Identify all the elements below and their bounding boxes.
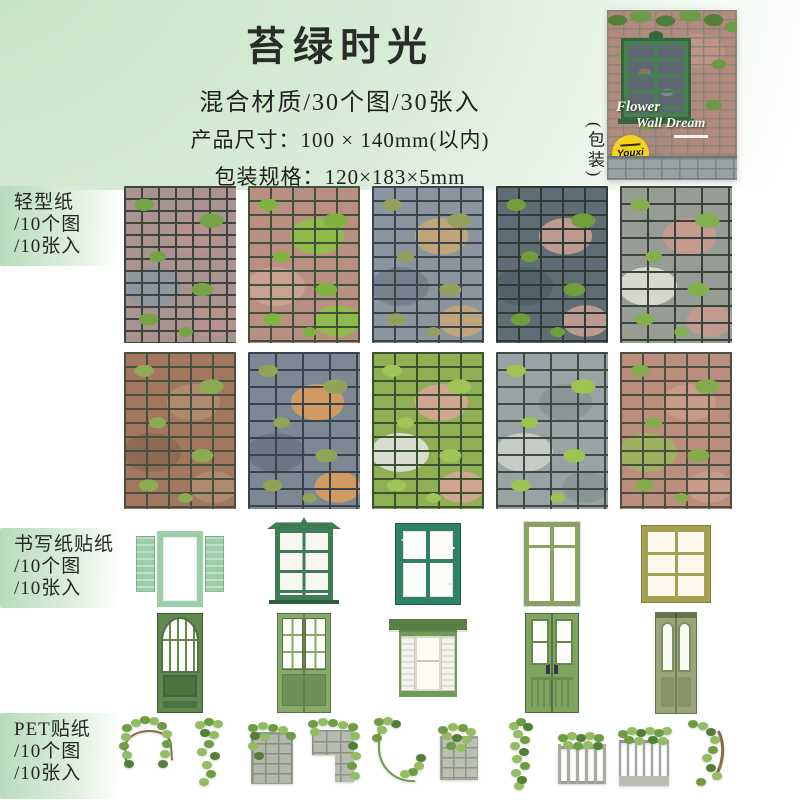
art-part	[248, 724, 258, 732]
window-shuttered-cornice	[372, 610, 484, 716]
brick-tile-2	[248, 186, 360, 343]
pavement-art	[607, 156, 737, 180]
package-side-label: (包装)	[585, 122, 607, 180]
section-label-line: /10个图	[14, 556, 120, 578]
window-art	[275, 528, 333, 600]
section-label-line: 轻型纸	[14, 192, 120, 214]
door-panel-double	[496, 610, 608, 716]
art-part	[554, 716, 564, 724]
pet-sticker-arch-vine	[118, 714, 176, 794]
art-part	[675, 532, 678, 596]
art-part	[689, 721, 728, 788]
doors-row	[124, 610, 732, 716]
door-art	[655, 612, 697, 714]
door-glass-double	[248, 610, 360, 716]
art-part	[616, 716, 626, 724]
art-part	[678, 716, 688, 724]
section-label-writing-sticker: 书写纸贴纸 /10个图 /10张入	[0, 528, 120, 608]
pet-sticker-stone-ivy	[428, 714, 486, 794]
window-art	[524, 522, 580, 606]
art-part	[123, 728, 173, 763]
section-label-light-paper: 轻型纸 /10个图 /10张入	[0, 186, 120, 266]
window-art	[642, 526, 710, 602]
art-part	[531, 677, 573, 707]
art-part	[558, 744, 606, 784]
art-part	[678, 622, 691, 672]
pet-sticker-art	[430, 716, 484, 792]
section-label-line: /10张入	[14, 578, 120, 600]
door-arch-fanlight	[124, 610, 236, 716]
brick-tile-6	[124, 352, 236, 509]
art-part	[440, 736, 478, 780]
pet-sticker-art	[306, 716, 360, 792]
art-part	[312, 730, 354, 782]
art-part	[558, 734, 568, 742]
art-part	[618, 730, 628, 738]
pet-sticker-hanging-vine	[180, 714, 238, 794]
section-label-line: /10张入	[14, 763, 120, 785]
pet-sticker-art	[554, 716, 608, 792]
pet-sticker-branch-vine	[676, 714, 734, 794]
section-label-line: 书写纸贴纸	[14, 534, 120, 556]
art-part	[661, 622, 674, 672]
window-pediment	[248, 520, 360, 608]
brick-tile-7	[248, 352, 360, 509]
spec-product-size-label: 产品尺寸：	[191, 128, 301, 152]
pet-sticker-art	[182, 716, 236, 792]
art-part	[368, 716, 378, 724]
package-caption-bar	[674, 135, 708, 138]
product-detail-image: 苔绿时光 混合材质/30个图/30张入 产品尺寸：100 × 140mm(以内)…	[0, 0, 800, 800]
pet-sticker-art	[616, 716, 670, 792]
pet-stickers-row	[118, 714, 738, 794]
window-art	[396, 524, 460, 604]
brick-tile-5	[620, 186, 732, 343]
page-title: 苔绿时光	[60, 14, 620, 72]
art-part	[529, 545, 575, 548]
art-part	[516, 718, 526, 726]
art-part	[619, 740, 669, 786]
section-label-line: /10个图	[14, 741, 120, 763]
pet-sticker-curl-vine	[366, 714, 424, 794]
art-part	[205, 536, 224, 592]
art-part	[492, 716, 502, 724]
art-part	[555, 619, 573, 665]
brick-tile-4	[496, 186, 608, 343]
spec-product-size: 产品尺寸：100 × 140mm(以内)	[60, 124, 620, 154]
art-part	[182, 716, 192, 724]
art-part	[688, 720, 698, 728]
art-part	[204, 718, 214, 726]
window-weathered	[372, 520, 484, 608]
brick-tile-10	[620, 352, 732, 509]
brick-tile-1	[124, 186, 236, 343]
door-art	[157, 613, 203, 713]
art-part	[396, 524, 460, 604]
package-title-line1: Flower	[616, 99, 708, 116]
pet-sticker-art	[244, 716, 298, 792]
brick-tile-3	[372, 186, 484, 343]
art-part	[280, 533, 328, 595]
section-label-line: /10张入	[14, 236, 120, 258]
pet-sticker-art	[120, 716, 174, 792]
pet-sticker-art	[678, 716, 732, 792]
art-part	[438, 726, 448, 734]
art-part	[244, 716, 254, 724]
art-part	[305, 618, 326, 670]
brick-tile-8	[372, 352, 484, 509]
art-part	[251, 732, 293, 784]
art-part	[282, 618, 303, 670]
door-art	[389, 619, 467, 707]
art-part	[136, 536, 155, 592]
package-title-line2: Wall Dream	[636, 116, 708, 131]
art-part	[550, 527, 554, 601]
door-narrow-double	[620, 610, 732, 716]
section-label-pet-sticker: PET贴纸 /10个图 /10张入	[0, 713, 120, 799]
header: 苔绿时光 混合材质/30个图/30张入 产品尺寸：100 × 140mm(以内)…	[60, 14, 620, 191]
package-cover: Flower Wall Dream Youxi	[607, 10, 737, 180]
package-display: (包装) Flower Wall Dream Youxi	[585, 10, 737, 180]
pet-sticker-wall-corner	[304, 714, 362, 794]
pet-sticker-art	[492, 716, 546, 792]
art-part	[157, 531, 203, 607]
brick-photo-grid	[124, 186, 732, 509]
package-title: Flower Wall Dream	[616, 99, 708, 138]
section-label-line: /10个图	[14, 214, 120, 236]
pet-sticker-ivy-wall	[242, 714, 300, 794]
window-open-shutters	[124, 520, 236, 608]
product-subtitle: 混合材质/30个图/30张入	[60, 82, 620, 117]
door-art	[525, 613, 579, 713]
art-part	[163, 675, 197, 697]
art-part	[378, 726, 416, 782]
art-part	[163, 701, 197, 708]
pet-sticker-vine-column	[490, 714, 548, 794]
art-part	[161, 617, 199, 673]
pet-sticker-fence-ivy	[552, 714, 610, 794]
window-six-pane	[620, 520, 732, 608]
art-part	[415, 636, 441, 691]
art-part	[661, 677, 691, 707]
art-part	[306, 716, 316, 724]
windows-row	[124, 520, 732, 608]
spec-product-size-value: 100 × 140mm(以内)	[301, 128, 490, 152]
art-part	[531, 619, 549, 665]
art-part	[401, 636, 415, 691]
section-label-line: PET贴纸	[14, 719, 120, 741]
door-art	[277, 613, 331, 713]
art-part	[430, 716, 440, 724]
pet-sticker-art	[368, 716, 422, 792]
brick-tile-9	[496, 352, 608, 509]
art-part	[648, 573, 704, 576]
window-tall-double	[496, 520, 608, 608]
art-part	[122, 724, 132, 732]
art-part	[282, 674, 326, 706]
art-part	[120, 716, 130, 724]
art-part	[389, 619, 467, 630]
window-art	[136, 531, 224, 597]
pet-sticker-balcony-ivy	[614, 714, 672, 794]
art-part	[648, 552, 704, 555]
